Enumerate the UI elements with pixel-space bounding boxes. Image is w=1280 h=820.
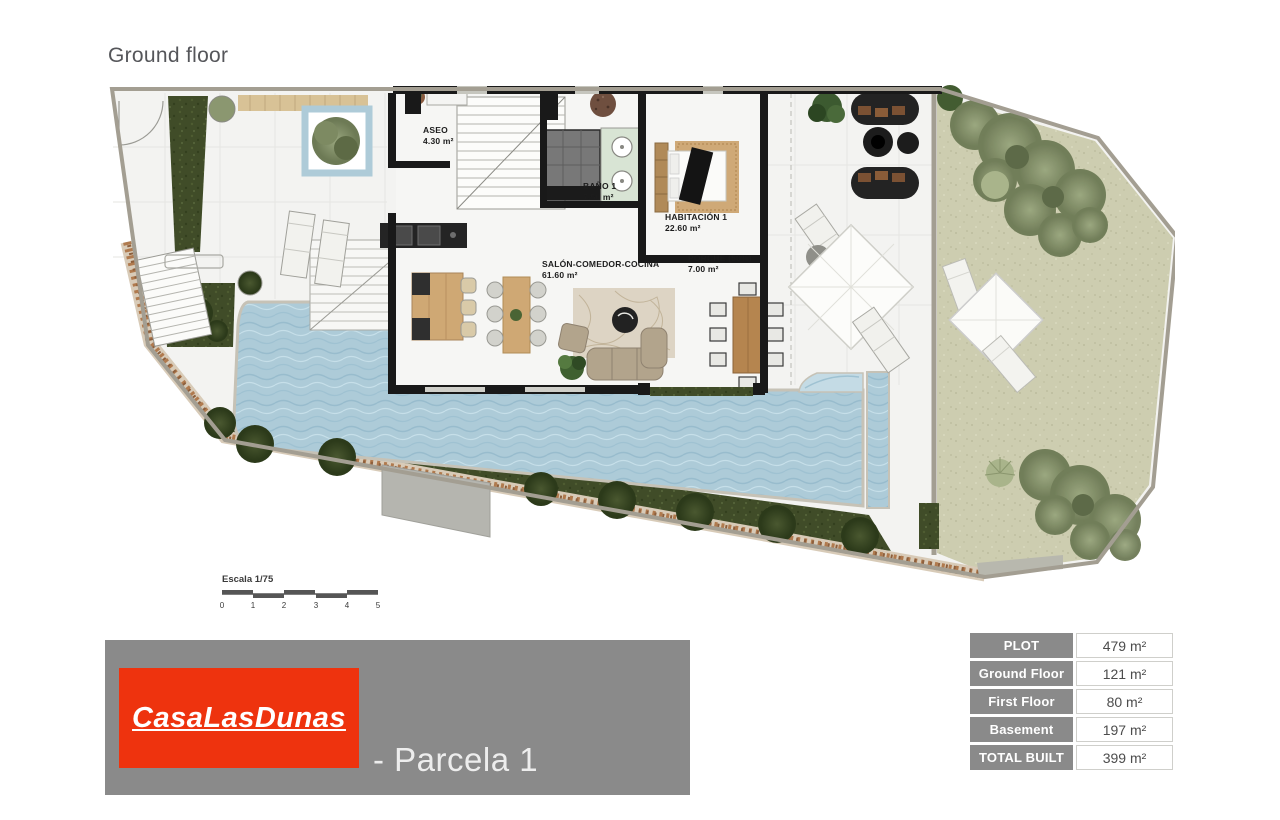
svg-text:3: 3 — [314, 601, 319, 610]
hedge-strip-right — [919, 503, 939, 549]
bedroom — [655, 141, 739, 213]
area-label: TOTAL BUILT — [970, 745, 1073, 770]
coffee-table — [612, 307, 638, 333]
page-title: Ground floor — [108, 44, 228, 68]
area-value: 197 m² — [1076, 717, 1173, 742]
table-row: TOTAL BUILT 399 m² — [970, 745, 1173, 770]
kitchen-island — [412, 273, 463, 340]
area-value: 399 m² — [1076, 745, 1173, 770]
round-table — [897, 132, 919, 154]
svg-text:2: 2 — [282, 601, 287, 610]
table-row: PLOT 479 m² — [970, 633, 1173, 658]
sofa-chaise — [641, 328, 667, 368]
table-row: Ground Floor 121 m² — [970, 661, 1173, 686]
area-label: Ground Floor — [970, 661, 1073, 686]
svg-text:SALÓN-COMEDOR-COCINA: SALÓN-COMEDOR-COCINA — [542, 258, 659, 269]
brand-logo-text: CasaLasDunas — [132, 702, 346, 735]
porch-hedge — [650, 387, 753, 396]
area-label: Basement — [970, 717, 1073, 742]
table-row: First Floor 80 m² — [970, 689, 1173, 714]
bar-stools — [461, 278, 476, 337]
svg-text:7.00 m²: 7.00 m² — [688, 264, 719, 274]
svg-text:HABITACIÓN 1: HABITACIÓN 1 — [665, 211, 727, 222]
area-value: 121 m² — [1076, 661, 1173, 686]
table-row: Basement 197 m² — [970, 717, 1173, 742]
svg-text:4.30 m²: 4.30 m² — [423, 136, 454, 146]
area-value: 80 m² — [1076, 689, 1173, 714]
pool-channel — [867, 372, 889, 508]
svg-text:7.50 m²: 7.50 m² — [583, 192, 614, 202]
plot-name-label: - Parcela 1 — [373, 741, 538, 779]
svg-text:BAÑO 1: BAÑO 1 — [583, 181, 616, 191]
floor-plan-drawing: ASEO 4.30 m² BAÑO 1 7.50 m² HABITACIÓN 1… — [105, 85, 1175, 610]
room-label-bano: BAÑO 1 7.50 m² — [583, 181, 616, 202]
svg-text:61.60 m²: 61.60 m² — [542, 270, 578, 280]
areas-table: PLOT 479 m² Ground Floor 121 m² First Fl… — [970, 633, 1173, 770]
brand-logo: CasaLasDunas — [119, 668, 359, 768]
area-label: PLOT — [970, 633, 1073, 658]
svg-text:Escala 1/75: Escala 1/75 — [222, 574, 274, 585]
svg-text:5: 5 — [376, 601, 381, 610]
potted-tree — [209, 96, 235, 122]
footer-branding-bar: CasaLasDunas - Parcela 1 — [105, 640, 690, 795]
living-area — [558, 288, 675, 380]
svg-text:0: 0 — [220, 601, 225, 610]
dining-table — [487, 277, 546, 353]
round-rug — [590, 91, 616, 117]
svg-text:ASEO: ASEO — [423, 125, 448, 135]
svg-text:PORCHE (50%): PORCHE (50%) — [688, 253, 752, 263]
scale-bar: Escala 1/75 0 1 2 3 4 5 — [220, 574, 381, 610]
pouf — [558, 323, 590, 354]
svg-text:4: 4 — [345, 601, 350, 610]
tree-planter — [305, 109, 369, 173]
area-value: 479 m² — [1076, 633, 1173, 658]
svg-text:22.60 m²: 22.60 m² — [665, 223, 701, 233]
floor-plan-page: Ground floor — [0, 0, 1280, 820]
svg-text:1: 1 — [251, 601, 256, 610]
area-label: First Floor — [970, 689, 1073, 714]
